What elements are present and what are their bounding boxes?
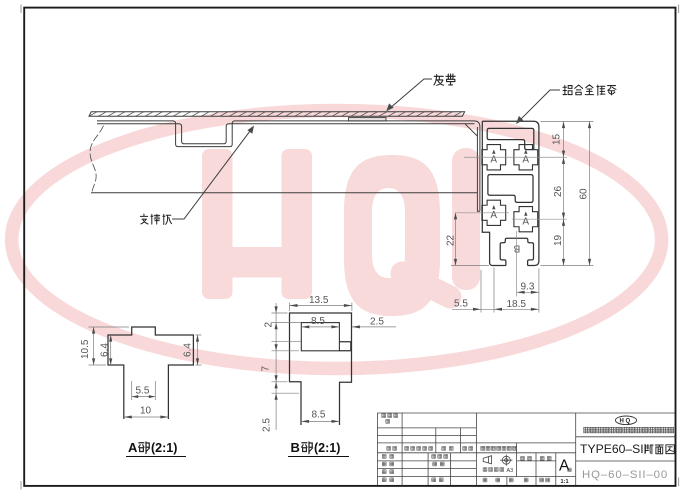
svg-text:9.3: 9.3	[521, 282, 535, 293]
svg-text:10.5: 10.5	[80, 339, 91, 359]
svg-text:B: B	[291, 440, 300, 455]
svg-text:19: 19	[553, 234, 564, 246]
svg-text:A3: A3	[507, 468, 514, 474]
svg-text:2.5: 2.5	[370, 317, 384, 328]
svg-text:10: 10	[140, 406, 152, 417]
svg-text:60: 60	[579, 188, 590, 200]
svg-text:(2:1): (2:1)	[314, 441, 340, 455]
svg-text:6.4: 6.4	[100, 343, 111, 357]
svg-text:(2:1): (2:1)	[151, 441, 177, 455]
svg-text:2: 2	[264, 322, 275, 328]
svg-text:13.5: 13.5	[309, 295, 329, 306]
svg-text:6.4: 6.4	[183, 343, 194, 357]
svg-text:8.5: 8.5	[312, 410, 326, 421]
svg-text:15: 15	[552, 133, 563, 145]
svg-text:22: 22	[446, 234, 457, 246]
svg-text:5.5: 5.5	[136, 386, 150, 397]
svg-text:A: A	[522, 217, 529, 228]
svg-text:8.5: 8.5	[311, 316, 325, 327]
svg-text:18.5: 18.5	[507, 299, 527, 310]
svg-text:26: 26	[553, 185, 564, 197]
svg-text:2.5: 2.5	[262, 418, 273, 432]
svg-text:A: A	[128, 440, 138, 455]
svg-text:5.5: 5.5	[454, 299, 468, 310]
svg-text:H Q: H Q	[620, 419, 631, 425]
svg-text:A: A	[522, 155, 529, 166]
svg-text:7: 7	[261, 366, 272, 372]
svg-text:TYPE60–SII: TYPE60–SII	[580, 442, 647, 456]
svg-text:1:1: 1:1	[561, 479, 569, 485]
svg-text:HQ–60–SII–00: HQ–60–SII–00	[582, 469, 668, 481]
svg-text:A: A	[490, 210, 497, 221]
svg-text:A: A	[490, 155, 497, 166]
